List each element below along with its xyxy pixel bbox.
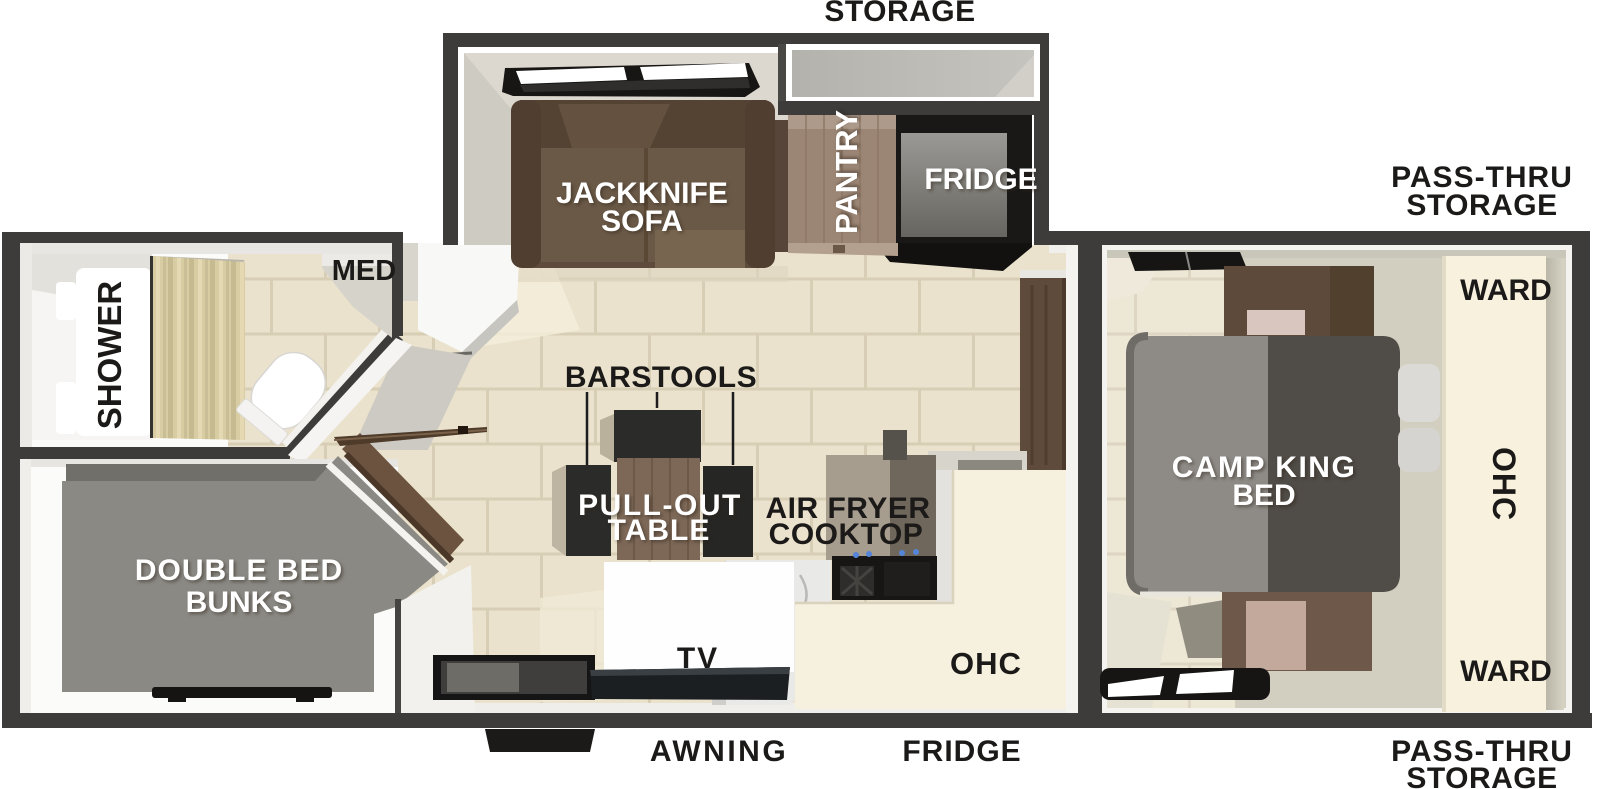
svg-text:STORAGE: STORAGE <box>1406 189 1557 222</box>
svg-text:BARSTOOLS: BARSTOOLS <box>565 361 757 394</box>
svg-text:OHC: OHC <box>1486 447 1522 521</box>
svg-text:STORAGE: STORAGE <box>1406 762 1557 789</box>
svg-text:COOKTOP: COOKTOP <box>769 518 924 551</box>
svg-text:SOFA: SOFA <box>601 205 683 238</box>
svg-text:MED: MED <box>332 255 396 287</box>
svg-text:AWNING: AWNING <box>650 735 788 768</box>
svg-text:STORAGE: STORAGE <box>824 0 975 28</box>
svg-text:TABLE: TABLE <box>608 514 711 547</box>
svg-text:BUNKS: BUNKS <box>186 586 293 619</box>
svg-text:WARD: WARD <box>1460 274 1552 307</box>
svg-text:FRIDGE: FRIDGE <box>924 163 1037 196</box>
svg-text:TV: TV <box>677 642 719 675</box>
svg-text:SHOWER: SHOWER <box>91 281 128 430</box>
svg-text:PANTRY: PANTRY <box>829 110 864 234</box>
svg-text:FRIDGE: FRIDGE <box>902 735 1021 768</box>
svg-text:WARD: WARD <box>1460 655 1552 688</box>
svg-text:OHC: OHC <box>950 646 1022 681</box>
svg-text:DOUBLE BED: DOUBLE BED <box>135 554 343 587</box>
svg-text:BED: BED <box>1232 479 1295 512</box>
